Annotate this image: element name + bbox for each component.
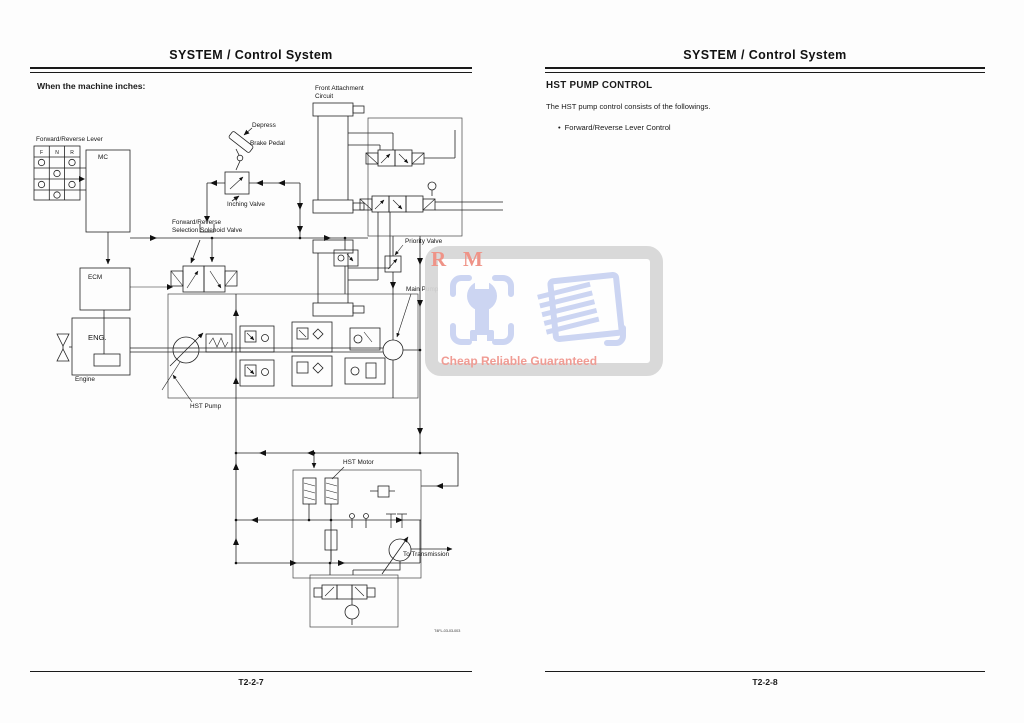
fr-selection-solenoid-valve (171, 266, 237, 292)
attachment-valve-box (368, 118, 462, 236)
label-to-transmission: To Transmission (403, 551, 449, 559)
bottom-valve-box (310, 575, 398, 627)
book-icon (538, 275, 623, 343)
page-title: SYSTEM / Control System (545, 48, 985, 62)
footer-rule-right (545, 671, 985, 672)
section-title: HST PUMP CONTROL (546, 80, 652, 91)
lever-letter-n: N (55, 150, 59, 156)
label-front-attachment: Front Attachment Circuit (315, 85, 364, 100)
front-attachment-cylinders (313, 103, 364, 316)
label-fr-selection-valve: Forward/Reverse Selection Solenoid Valve (172, 219, 242, 234)
label-ecm: ECM (88, 274, 102, 282)
label-depress: Depress (252, 122, 276, 130)
hst-pump-assembly-box (168, 294, 418, 398)
inching-valve-symbol (225, 172, 249, 194)
wrench-icon (467, 276, 497, 343)
watermark-letter-r: R (431, 247, 446, 272)
section-body: The HST pump control consists of the fol… (546, 102, 710, 111)
watermark: R M Cheap Reliable Guaranteed (425, 246, 663, 376)
figure-code: T4FL-03-03-003 (434, 628, 460, 633)
main-pump-symbol (383, 340, 403, 360)
watermark-letter-m: M (463, 247, 483, 272)
bullet-dot: • (558, 123, 561, 132)
spool-valve-2 (360, 182, 436, 212)
label-brake-pedal: Brake Pedal (250, 140, 285, 148)
lever-letter-f: F (40, 150, 43, 156)
watermark-slogan: Cheap Reliable Guaranteed (441, 354, 597, 368)
label-engine: Engine (75, 376, 95, 384)
label-inching-valve: Inching Valve (227, 201, 265, 209)
manual-spread: SYSTEM / Control System When the machine… (0, 0, 1024, 723)
label-mc: MC (98, 154, 108, 162)
lever-letter-r: R (70, 150, 74, 156)
eng-box (72, 318, 130, 375)
label-priority-valve: Priority Valve (405, 238, 442, 246)
priority-valve-symbol (385, 256, 401, 272)
lever-grid: F N R (34, 146, 80, 200)
brake-pedal-symbol (228, 131, 253, 170)
page-number-left: T2-2-7 (30, 677, 472, 687)
footer-rule-left (30, 671, 472, 672)
header-rule (545, 67, 985, 73)
label-forward-reverse-lever: Forward/Reverse Lever (36, 136, 103, 144)
bullet-item: •Forward/Reverse Lever Control (558, 123, 671, 132)
page-number-right: T2-2-8 (545, 677, 985, 687)
mc-box (86, 150, 130, 232)
label-hst-pump: HST Pump (190, 403, 221, 411)
spool-valve-1 (366, 130, 455, 166)
fan-icon (57, 334, 72, 361)
label-eng: ENG. (88, 334, 107, 342)
label-hst-motor: HST Motor (343, 459, 374, 467)
bullet-text: Forward/Reverse Lever Control (565, 123, 671, 132)
